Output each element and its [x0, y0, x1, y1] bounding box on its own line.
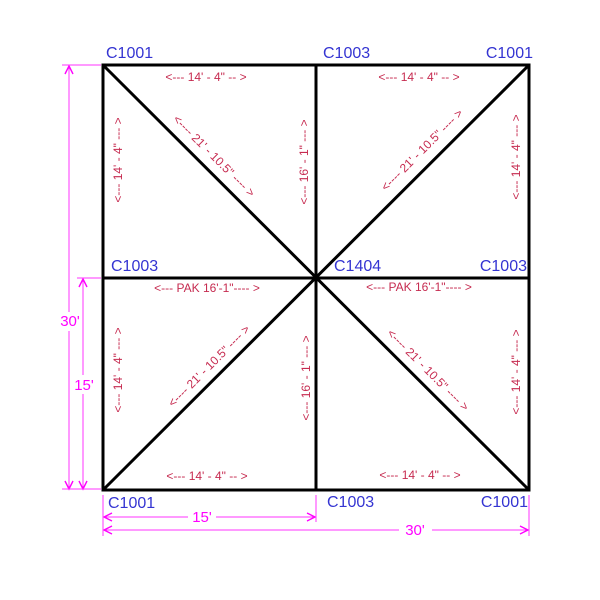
dim-panel-side-right-upper: <--- 14' - 4" --- > [509, 114, 523, 199]
part-label-top-center: C1003 [323, 45, 370, 62]
part-label-top-left: C1001 [106, 45, 153, 62]
dim-diagonal-top-left: <---- 21' - 10.5" ---- > [170, 112, 258, 200]
dim-panel-side-left-upper: <--- 14' - 4" --- > [111, 117, 125, 202]
dim-panel-side-left-lower: <--- 14' - 4" --- > [111, 327, 125, 412]
frame-plan-diagram: C1001 C1003 C1001 C1003 C1404 C1003 C100… [0, 0, 600, 600]
part-label-mid-left: C1003 [111, 258, 158, 275]
dim-center-height-upper: <--- 16' - 1" --- > [297, 119, 311, 204]
part-label-bottom-center: C1003 [327, 494, 374, 511]
dim-overall-width-label: 30' [405, 522, 425, 539]
dim-diagonal-top-right: <---- 21' - 10.5" ---- > [378, 106, 466, 194]
dim-panel-width-bottom-right: <--- 14' - 4" -- > [379, 468, 460, 482]
dim-panel-side-right-lower: <--- 14' - 4" --- > [509, 329, 523, 414]
dim-pak-right: <--- PAK 16'-1"---- > [366, 280, 472, 294]
dim-panel-width-bottom-left: <--- 14' - 4" -- > [166, 469, 247, 483]
part-label-top-right: C1001 [486, 45, 533, 62]
dim-diagonal-bottom-right: <---- 21' - 10.5" ---- > [384, 326, 472, 414]
dim-half-height-label: 15' [74, 377, 94, 394]
part-label-mid-right: C1003 [480, 258, 527, 275]
dim-half-width-label: 15' [192, 509, 212, 526]
dim-pak-left: <--- PAK 16'-1"---- > [154, 281, 260, 295]
part-label-center: C1404 [334, 258, 381, 275]
dim-center-height-lower: <--- 16' - 1" --- > [299, 335, 313, 420]
dim-diagonal-bottom-left: <---- 21' - 10.5" ---- > [165, 322, 253, 410]
dim-panel-width-top-right: <--- 14' - 4" -- > [378, 70, 459, 84]
part-label-bottom-left: C1001 [108, 495, 155, 512]
dim-overall-height-label: 30' [60, 313, 80, 330]
dim-panel-width-top-left: <--- 14' - 4" -- > [165, 70, 246, 84]
part-label-bottom-right: C1001 [481, 494, 528, 511]
